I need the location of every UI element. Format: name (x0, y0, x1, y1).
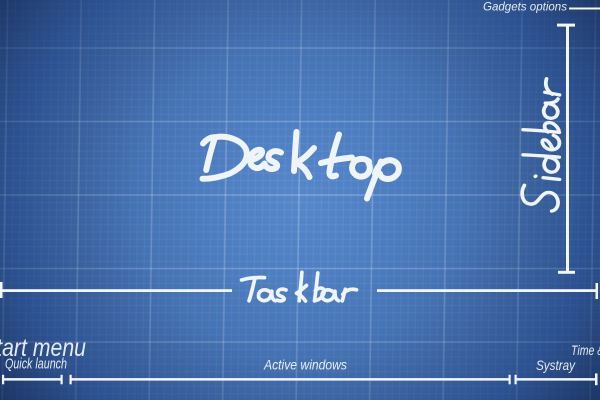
svg-text:Gadgets options: Gadgets options (483, 0, 567, 13)
svg-text:Quick launch: Quick launch (5, 356, 67, 373)
svg-text:Time & da: Time & da (571, 342, 600, 358)
svg-text:Systray: Systray (536, 357, 576, 373)
svg-text:Active windows: Active windows (263, 357, 347, 373)
